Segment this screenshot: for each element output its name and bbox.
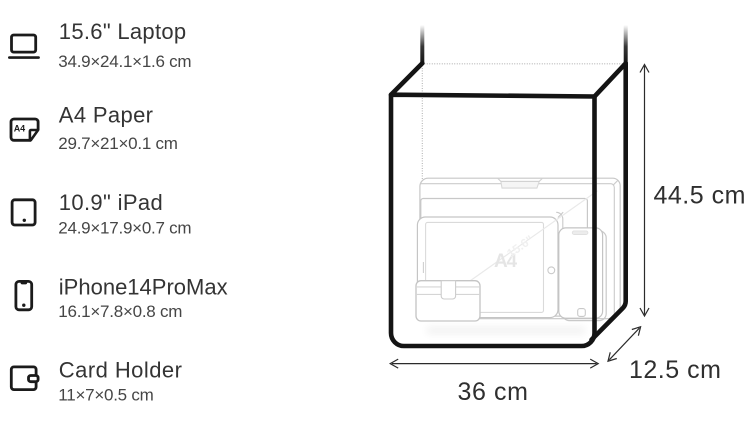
svg-text:16.1×7.8×0.8 cm: 16.1×7.8×0.8 cm xyxy=(58,302,182,321)
svg-text:A4 Paper: A4 Paper xyxy=(59,102,154,127)
svg-text:36 cm: 36 cm xyxy=(458,378,529,406)
svg-text:iPhone14ProMax: iPhone14ProMax xyxy=(59,274,228,299)
svg-text:15.6" Laptop: 15.6" Laptop xyxy=(59,19,187,44)
svg-text:11×7×0.5 cm: 11×7×0.5 cm xyxy=(58,386,153,405)
svg-text:29.7×21×0.1 cm: 29.7×21×0.1 cm xyxy=(58,134,177,153)
svg-text:34.9×24.1×1.6 cm: 34.9×24.1×1.6 cm xyxy=(58,52,191,71)
svg-text:A4: A4 xyxy=(14,124,25,134)
svg-text:Card Holder: Card Holder xyxy=(59,357,183,382)
svg-text:44.5 cm: 44.5 cm xyxy=(654,182,746,210)
svg-text:12.5 cm: 12.5 cm xyxy=(629,356,721,384)
svg-text:10.9" iPad: 10.9" iPad xyxy=(59,190,163,215)
svg-text:24.9×17.9×0.7 cm: 24.9×17.9×0.7 cm xyxy=(58,218,191,237)
